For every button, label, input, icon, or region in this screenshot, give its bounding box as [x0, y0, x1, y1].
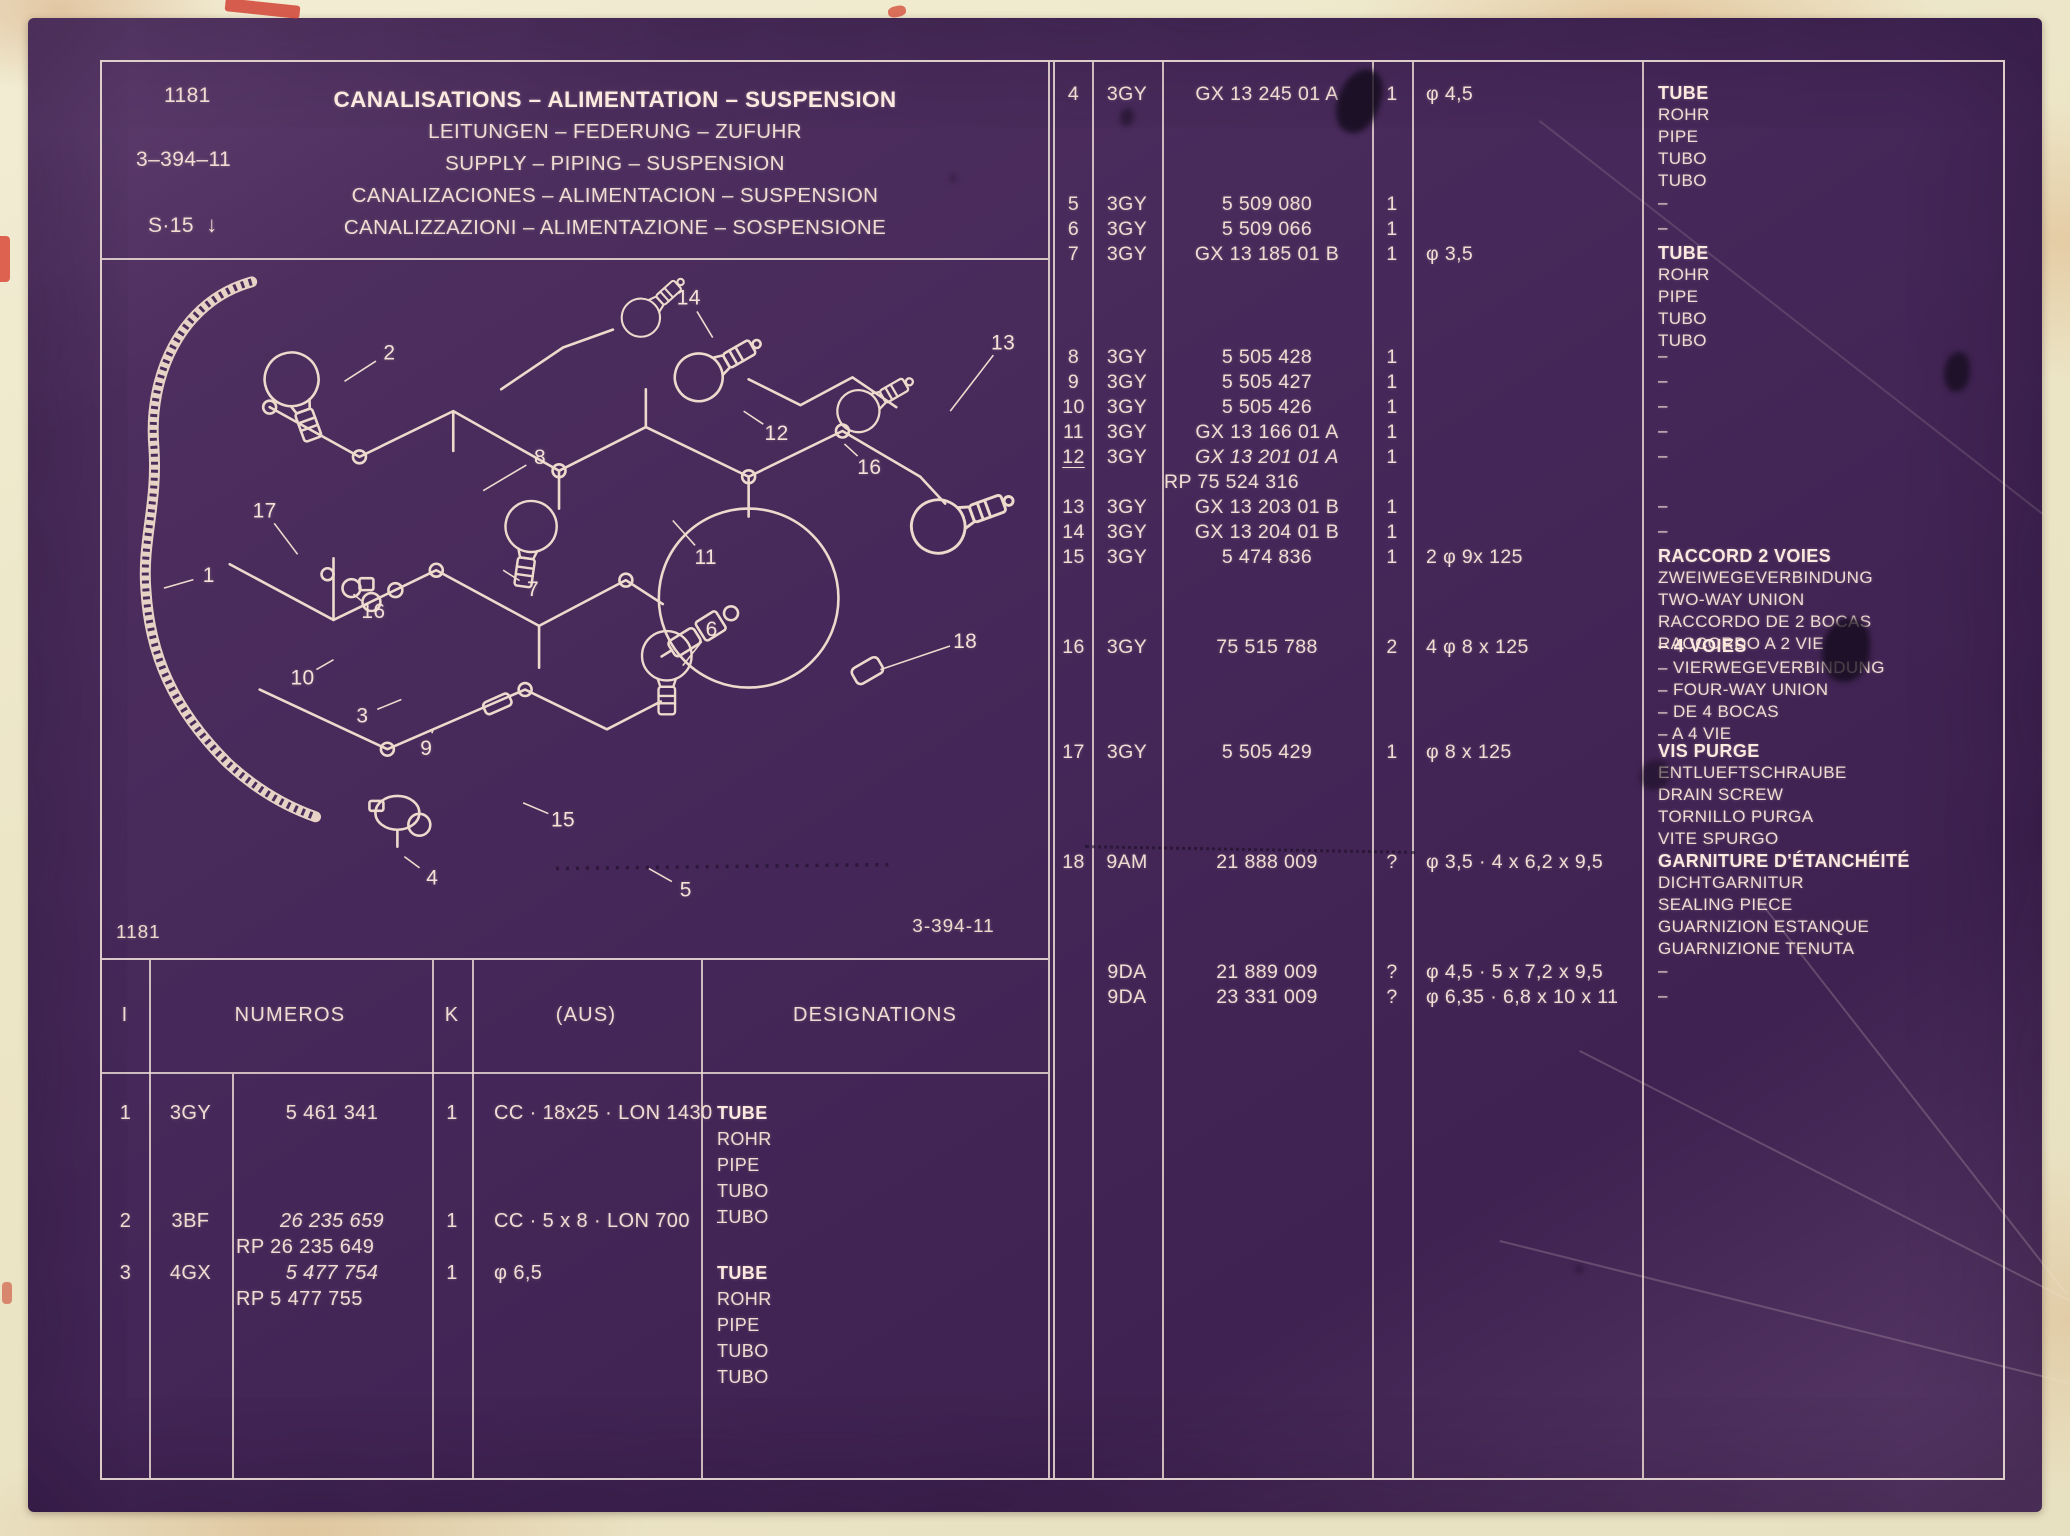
catalog-number: 1181	[164, 84, 211, 108]
part-number: 5 505 426	[1162, 395, 1372, 420]
quantity: 1	[1372, 445, 1412, 470]
family-code: 3GY	[1092, 740, 1162, 765]
callout-number: 14	[677, 287, 701, 310]
callout-leader-line	[844, 444, 857, 456]
family-code: 3GY	[1092, 192, 1162, 217]
family-code: 3GY	[1092, 445, 1162, 470]
designation: GARNITURE D'ÉTANCHÉITÉDICHTGARNITURSEALI…	[1642, 850, 2003, 960]
designation: –	[1642, 960, 2003, 982]
parts-row: 103GY5 505 4261–	[1055, 395, 2003, 420]
family-code: 3GY	[1092, 545, 1162, 570]
designation: TUBEROHRPIPETUBOTUBO	[701, 1260, 1048, 1390]
designation-line: TUBE	[1658, 242, 2003, 264]
quantity: 1	[1372, 192, 1412, 217]
part-number-line: GX 13 204 01 B	[1162, 520, 1372, 545]
part-number-line: 21 888 009	[1162, 850, 1372, 875]
legend-table-body: 13GY5 461 3411CC · 18x25 · LON 1430TUBER…	[102, 1074, 1048, 1478]
parts-list-table: 43GYGX 13 245 01 A1φ 4,5TUBEROHRPIPETUBO…	[1053, 62, 2003, 1478]
legend-row: 23BF26 235 659RP 26 235 6491CC · 5 x 8 ·…	[102, 1208, 1048, 1260]
part-number: 5 461 341	[232, 1100, 432, 1126]
parts-legend-table: I NUMEROS K (AUS) DESIGNATIONS 13GY5 461…	[102, 958, 1048, 1478]
part-number: 5 505 427	[1162, 370, 1372, 395]
dimension: φ 3,5 · 4 x 6,2 x 9,5	[1412, 850, 1642, 875]
parts-row: 93GY5 505 4271–	[1055, 370, 2003, 395]
callout-leader-line	[649, 869, 672, 882]
item-number: 5	[1055, 192, 1092, 217]
part-number-line: GX 13 166 01 A	[1162, 420, 1372, 445]
quantity: ?	[1372, 985, 1412, 1010]
callout-number: 16	[857, 456, 881, 479]
part-number: GX 13 204 01 B	[1162, 520, 1372, 545]
quantity: 1	[432, 1100, 472, 1126]
microfiche-slide: 1181 3–394–11 S·15 ↓ CANALISATIONS – ALI…	[28, 18, 2042, 1512]
family-code: 3GY	[1092, 395, 1162, 420]
multilingual-titles: CANALISATIONS – ALIMENTATION – SUSPENSIO…	[222, 84, 1008, 244]
item-number: 16	[1055, 635, 1092, 660]
callout-leader-line	[880, 646, 950, 670]
series-label: S·15	[148, 214, 194, 237]
designation-line: ZWEIWEGEVERBINDUNG	[1658, 567, 2003, 589]
quantity: ?	[1372, 850, 1412, 875]
family-code: 9AM	[1092, 850, 1162, 875]
designation-line: TUBO	[717, 1178, 1048, 1204]
diagram-artwork	[145, 266, 1022, 869]
designation-line: TUBO	[1658, 170, 2003, 192]
quantity: 1	[1372, 82, 1412, 107]
designation: VIS PURGEENTLUEFTSCHRAUBEDRAIN SCREWTORN…	[1642, 740, 2003, 850]
part-number: GX 13 201 01 ARP 75 524 316	[1162, 445, 1372, 495]
designation: –	[1642, 345, 2003, 367]
item-number: 7	[1055, 242, 1092, 267]
dimension: 2 φ 9x 125	[1412, 545, 1642, 570]
part-number: 26 235 659RP 26 235 649	[232, 1208, 432, 1260]
legend-header-i: I	[122, 1004, 129, 1027]
quantity: 1	[1372, 370, 1412, 395]
part-number-line: 5 505 427	[1162, 370, 1372, 395]
family-code: 3GY	[1092, 420, 1162, 445]
item-number: 6	[1055, 217, 1092, 242]
parts-row: 173GY5 505 4291φ 8 x 125VIS PURGEENTLUEF…	[1055, 740, 2003, 850]
part-number-line: 26 235 659	[232, 1208, 432, 1234]
item-number: 9	[1055, 370, 1092, 395]
designation-line: PIPE	[717, 1312, 1048, 1338]
parts-row: 63GY5 509 0661–	[1055, 217, 2003, 242]
designation-line: – DE 4 BOCAS	[1658, 701, 2003, 723]
part-number-line: 5 505 429	[1162, 740, 1372, 765]
designation-line: ROHR	[1658, 264, 2003, 286]
part-number-line: 23 331 009	[1162, 985, 1372, 1010]
item-number: 2	[102, 1208, 149, 1234]
designation-line: RACCORDO DE 2 BOCAS	[1658, 611, 2003, 633]
content-frame: 1181 3–394–11 S·15 ↓ CANALISATIONS – ALI…	[100, 60, 2005, 1480]
designation-line: DRAIN SCREW	[1658, 784, 2003, 806]
part-number-line: GX 13 245 01 A	[1162, 82, 1372, 107]
parts-row: 133GYGX 13 203 01 B1–	[1055, 495, 2003, 520]
part-number: 23 331 009	[1162, 985, 1372, 1010]
quantity: 1	[1372, 395, 1412, 420]
designation-line: ENTLUEFTSCHRAUBE	[1658, 762, 2003, 784]
designation-line: PIPE	[1658, 126, 2003, 148]
title-french: CANALISATIONS – ALIMENTATION – SUSPENSIO…	[222, 84, 1008, 116]
designation-line: –	[1658, 370, 2003, 392]
callout-number: 6	[706, 618, 718, 641]
exploded-parts-diagram: 14213812161717111610618391545 1181 3-394…	[102, 260, 1048, 958]
designation-line: DICHTGARNITUR	[1658, 872, 2003, 894]
part-number: 5 509 066	[1162, 217, 1372, 242]
quantity: 1	[1372, 420, 1412, 445]
designation-line: –	[1658, 217, 2003, 239]
callout-leader-line	[697, 311, 713, 337]
callout-number: 11	[694, 546, 717, 569]
designation-line: GUARNIZION ESTANQUE	[1658, 916, 2003, 938]
callout-leader-line	[673, 521, 695, 546]
callout-number: 12	[765, 422, 789, 445]
dimension: φ 4,5 · 5 x 7,2 x 9,5	[1412, 960, 1642, 985]
designation-line: GARNITURE D'ÉTANCHÉITÉ	[1658, 850, 2003, 872]
parts-row: 189AM21 888 009?φ 3,5 · 4 x 6,2 x 9,5GAR…	[1055, 850, 2003, 960]
down-arrow-icon: ↓	[206, 212, 217, 237]
callout-number: 15	[551, 809, 575, 832]
callout-number: 3	[356, 704, 368, 727]
parts-row: 83GY5 505 4281–	[1055, 345, 2003, 370]
designation-line: TUBO	[1658, 308, 2003, 330]
callout-leader-line	[316, 660, 333, 670]
family-code: 9DA	[1092, 960, 1162, 985]
designation-line: PIPE	[1658, 286, 2003, 308]
designation-line: –	[1658, 345, 2003, 367]
sealing-sleeve-part	[850, 655, 885, 685]
part-number-line: RP 26 235 649	[232, 1234, 432, 1260]
callout-number: 16	[361, 600, 385, 623]
parts-row: 123GYGX 13 201 01 ARP 75 524 3161–	[1055, 445, 2003, 495]
scan-smudge-dots	[556, 865, 890, 869]
legend-header-aus: (AUS)	[556, 1004, 616, 1027]
parts-row: 43GYGX 13 245 01 A1φ 4,5TUBEROHRPIPETUBO…	[1055, 82, 2003, 192]
dimension: φ 8 x 125	[1412, 740, 1642, 765]
part-number: GX 13 185 01 B	[1162, 242, 1372, 267]
part-number: GX 13 203 01 B	[1162, 495, 1372, 520]
callout-number: 9	[420, 737, 432, 760]
designation-line: –	[1658, 520, 2003, 542]
callout-number: 8	[534, 446, 546, 469]
designation: –	[701, 1208, 1048, 1234]
part-number: 75 515 788	[1162, 635, 1372, 660]
quantity: 2	[1372, 635, 1412, 660]
family-code: 3GY	[149, 1100, 232, 1126]
designation-line: –	[1658, 395, 2003, 417]
quantity: 1	[1372, 345, 1412, 370]
quantity: 1	[1372, 242, 1412, 267]
designation: –	[1642, 985, 2003, 1007]
part-number-line: 5 505 428	[1162, 345, 1372, 370]
part-number: 21 889 009	[1162, 960, 1372, 985]
item-number: 11	[1055, 420, 1092, 445]
part-number-replacement: RP 75 524 316	[1162, 470, 1372, 495]
title-block: 1181 3–394–11 S·15 ↓ CANALISATIONS – ALI…	[102, 62, 1048, 260]
family-code: 3GY	[1092, 217, 1162, 242]
part-number-line: 5 505 426	[1162, 395, 1372, 420]
callout-number: 7	[527, 578, 539, 601]
quantity: 1	[1372, 740, 1412, 765]
title-german: LEITUNGEN – FEDERUNG – ZUFUHR	[222, 116, 1008, 148]
item-number: 13	[1055, 495, 1092, 520]
item-number: 10	[1055, 395, 1092, 420]
designation-line: TUBE	[717, 1100, 1048, 1126]
designation-line: TUBE	[1658, 82, 2003, 104]
designation: –	[1642, 520, 2003, 542]
designation: TUBEROHRPIPETUBOTUBO	[1642, 242, 2003, 352]
dimension: CC · 18x25 · LON 1430	[472, 1100, 701, 1126]
callout-leader-line	[744, 411, 764, 424]
designation: –	[1642, 370, 2003, 392]
part-number-line: 5 474 836	[1162, 545, 1372, 570]
series-reference: S·15 ↓	[148, 212, 218, 238]
quantity: 1	[1372, 520, 1412, 545]
callout-number: 2	[383, 341, 395, 364]
parts-row: 9DA21 889 009?φ 4,5 · 5 x 7,2 x 9,5–	[1055, 960, 2003, 985]
designation-line: TWO-WAY UNION	[1658, 589, 2003, 611]
parts-row: 9DA23 331 009?φ 6,35 · 6,8 x 10 x 11–	[1055, 985, 2003, 1010]
designation-line: TUBO	[717, 1338, 1048, 1364]
part-number-line: 5 509 066	[1162, 217, 1372, 242]
family-code: 4GX	[149, 1260, 232, 1286]
pump-unit	[369, 796, 430, 847]
designation-line: –	[1658, 960, 2003, 982]
item-number: 17	[1055, 740, 1092, 765]
designation: –	[1642, 445, 2003, 467]
part-number-line: GX 13 201 01 A	[1162, 445, 1372, 470]
designation-line: TORNILLO PURGA	[1658, 806, 2003, 828]
callout-leader-line	[404, 857, 419, 868]
designation-line: –	[1658, 495, 2003, 517]
title-english: SUPPLY – PIPING – SUSPENSION	[222, 148, 1008, 180]
item-number: 12	[1055, 445, 1092, 470]
designation: –	[1642, 192, 2003, 214]
piping-diagram-svg: 14213812161717111610618391545 1181 3-394…	[102, 260, 1048, 958]
item-number: 15	[1055, 545, 1092, 570]
legend-header-k: K	[445, 1004, 460, 1027]
designation-line: GUARNIZIONE TENUTA	[1658, 938, 2003, 960]
designation-line: – FOUR-WAY UNION	[1658, 679, 2003, 701]
dimension: CC · 5 x 8 · LON 700	[472, 1208, 701, 1234]
item-number: 1	[102, 1100, 149, 1126]
designation-line: – VIERWEGEVERBINDUNG	[1658, 657, 2003, 679]
designation-line: RACCORD 2 VOIES	[1658, 545, 2003, 567]
diagram-corner-number: 1181	[116, 922, 161, 943]
family-code: 3GY	[1092, 242, 1162, 267]
quantity: 1	[1372, 545, 1412, 570]
red-ink-mark	[225, 0, 301, 19]
part-number-line: 21 889 009	[1162, 960, 1372, 985]
parts-row: 73GYGX 13 185 01 B1φ 3,5TUBEROHRPIPETUBO…	[1055, 242, 2003, 352]
designation-line: ROHR	[717, 1126, 1048, 1152]
designation-line: SEALING PIECE	[1658, 894, 2003, 916]
family-code: 3GY	[1092, 345, 1162, 370]
designation: –	[1642, 495, 2003, 517]
designation: – 4 VOIES– VIERWEGEVERBINDUNG– FOUR-WAY …	[1642, 635, 2003, 745]
title-spanish: CANALIZACIONES – ALIMENTACION – SUSPENSI…	[222, 180, 1008, 212]
designation: –	[1642, 217, 2003, 239]
designation: –	[1642, 395, 2003, 417]
part-number: 21 888 009	[1162, 850, 1372, 875]
callout-leader-line	[164, 580, 194, 589]
callout-number: 17	[253, 500, 277, 523]
designation-line: TUBO	[1658, 148, 2003, 170]
callout-number: 1	[203, 564, 215, 587]
red-edge-mark	[0, 236, 10, 282]
part-number-line: 75 515 788	[1162, 635, 1372, 660]
item-number: 8	[1055, 345, 1092, 370]
item-number: 4	[1055, 82, 1092, 107]
callout-leader-line	[344, 361, 375, 381]
plate-reference: 3–394–11	[136, 148, 231, 172]
family-code: 3GY	[1092, 370, 1162, 395]
part-number-line: RP 5 477 755	[232, 1286, 432, 1312]
family-code: 9DA	[1092, 985, 1162, 1010]
callout-number: 10	[291, 667, 315, 690]
family-code: 3GY	[1092, 495, 1162, 520]
part-number: 5 477 754RP 5 477 755	[232, 1260, 432, 1312]
part-number: 5 505 429	[1162, 740, 1372, 765]
designation-line: TUBE	[717, 1260, 1048, 1286]
callout-leader-line	[377, 699, 401, 709]
family-code: 3GY	[1092, 82, 1162, 107]
callout-number: 18	[953, 630, 977, 653]
legend-header-designations: DESIGNATIONS	[793, 1004, 957, 1027]
callout-leader-line	[950, 355, 993, 411]
left-column: 1181 3–394–11 S·15 ↓ CANALISATIONS – ALI…	[102, 62, 1050, 1478]
quantity: ?	[1372, 960, 1412, 985]
callout-leader-line	[274, 523, 297, 554]
quantity: 1	[1372, 217, 1412, 242]
dimension: φ 6,35 · 6,8 x 10 x 11	[1412, 985, 1642, 1010]
callout-number: 13	[991, 332, 1015, 355]
part-number: GX 13 166 01 A	[1162, 420, 1372, 445]
designation-line: – 4 VOIES	[1658, 635, 2003, 657]
callout-number: 4	[426, 866, 438, 889]
part-number: 5 505 428	[1162, 345, 1372, 370]
dimension: φ 6,5	[472, 1260, 701, 1286]
callout-leader-line	[523, 803, 548, 814]
quantity: 1	[432, 1260, 472, 1286]
part-number-line: 5 461 341	[232, 1100, 432, 1126]
red-ink-dot	[887, 4, 907, 19]
callout-number: 5	[680, 878, 692, 901]
legend-row: 34GX5 477 754RP 5 477 7551φ 6,5TUBEROHRP…	[102, 1260, 1048, 1390]
legend-header-numeros: NUMEROS	[235, 1004, 346, 1027]
designation-line: TUBO	[717, 1364, 1048, 1390]
part-number-line: GX 13 203 01 B	[1162, 495, 1372, 520]
callout-leader-line	[483, 465, 526, 491]
part-number: GX 13 245 01 A	[1162, 82, 1372, 107]
part-number: 5 474 836	[1162, 545, 1372, 570]
title-italian: CANALIZZAZIONI – ALIMENTAZIONE – SOSPENS…	[222, 212, 1008, 244]
designation-line: VITE SPURGO	[1658, 828, 2003, 850]
family-code: 3BF	[149, 1208, 232, 1234]
parts-table-body: 43GYGX 13 245 01 A1φ 4,5TUBEROHRPIPETUBO…	[1055, 62, 2003, 1478]
item-number: 14	[1055, 520, 1092, 545]
designation-line: –	[1658, 192, 2003, 214]
designation-line: PIPE	[717, 1152, 1048, 1178]
parts-row: 113GYGX 13 166 01 A1–	[1055, 420, 2003, 445]
red-edge-mark-2	[2, 1282, 12, 1304]
part-number-line: GX 13 185 01 B	[1162, 242, 1372, 267]
item-number: 3	[102, 1260, 149, 1286]
parts-row: 53GY5 509 0801–	[1055, 192, 2003, 217]
family-code: 3GY	[1092, 520, 1162, 545]
designation-line: VIS PURGE	[1658, 740, 2003, 762]
part-number-line: 5 509 080	[1162, 192, 1372, 217]
designation-line: –	[1658, 445, 2003, 467]
part-number-line: 5 477 754	[232, 1260, 432, 1286]
designation: TUBEROHRPIPETUBOTUBO	[1642, 82, 2003, 192]
diagram-corner-plate-ref: 3-394-11	[912, 916, 994, 937]
parts-row: 143GYGX 13 204 01 B1–	[1055, 520, 2003, 545]
designation-line: –	[717, 1208, 1048, 1234]
dimension: 4 φ 8 x 125	[1412, 635, 1642, 660]
quantity: 1	[1372, 495, 1412, 520]
designation-line: –	[1658, 985, 2003, 1007]
scanned-page-background: 1181 3–394–11 S·15 ↓ CANALISATIONS – ALI…	[0, 0, 2070, 1536]
part-number: 5 509 080	[1162, 192, 1372, 217]
designation-line: –	[1658, 420, 2003, 442]
dimension: φ 3,5	[1412, 242, 1642, 267]
designation-line: ROHR	[1658, 104, 2003, 126]
dimension: φ 4,5	[1412, 82, 1642, 107]
designation: –	[1642, 420, 2003, 442]
item-number: 18	[1055, 850, 1092, 875]
family-code: 3GY	[1092, 635, 1162, 660]
parts-row: 163GY75 515 78824 φ 8 x 125– 4 VOIES– VI…	[1055, 635, 2003, 745]
quantity: 1	[432, 1208, 472, 1234]
designation-line: ROHR	[717, 1286, 1048, 1312]
